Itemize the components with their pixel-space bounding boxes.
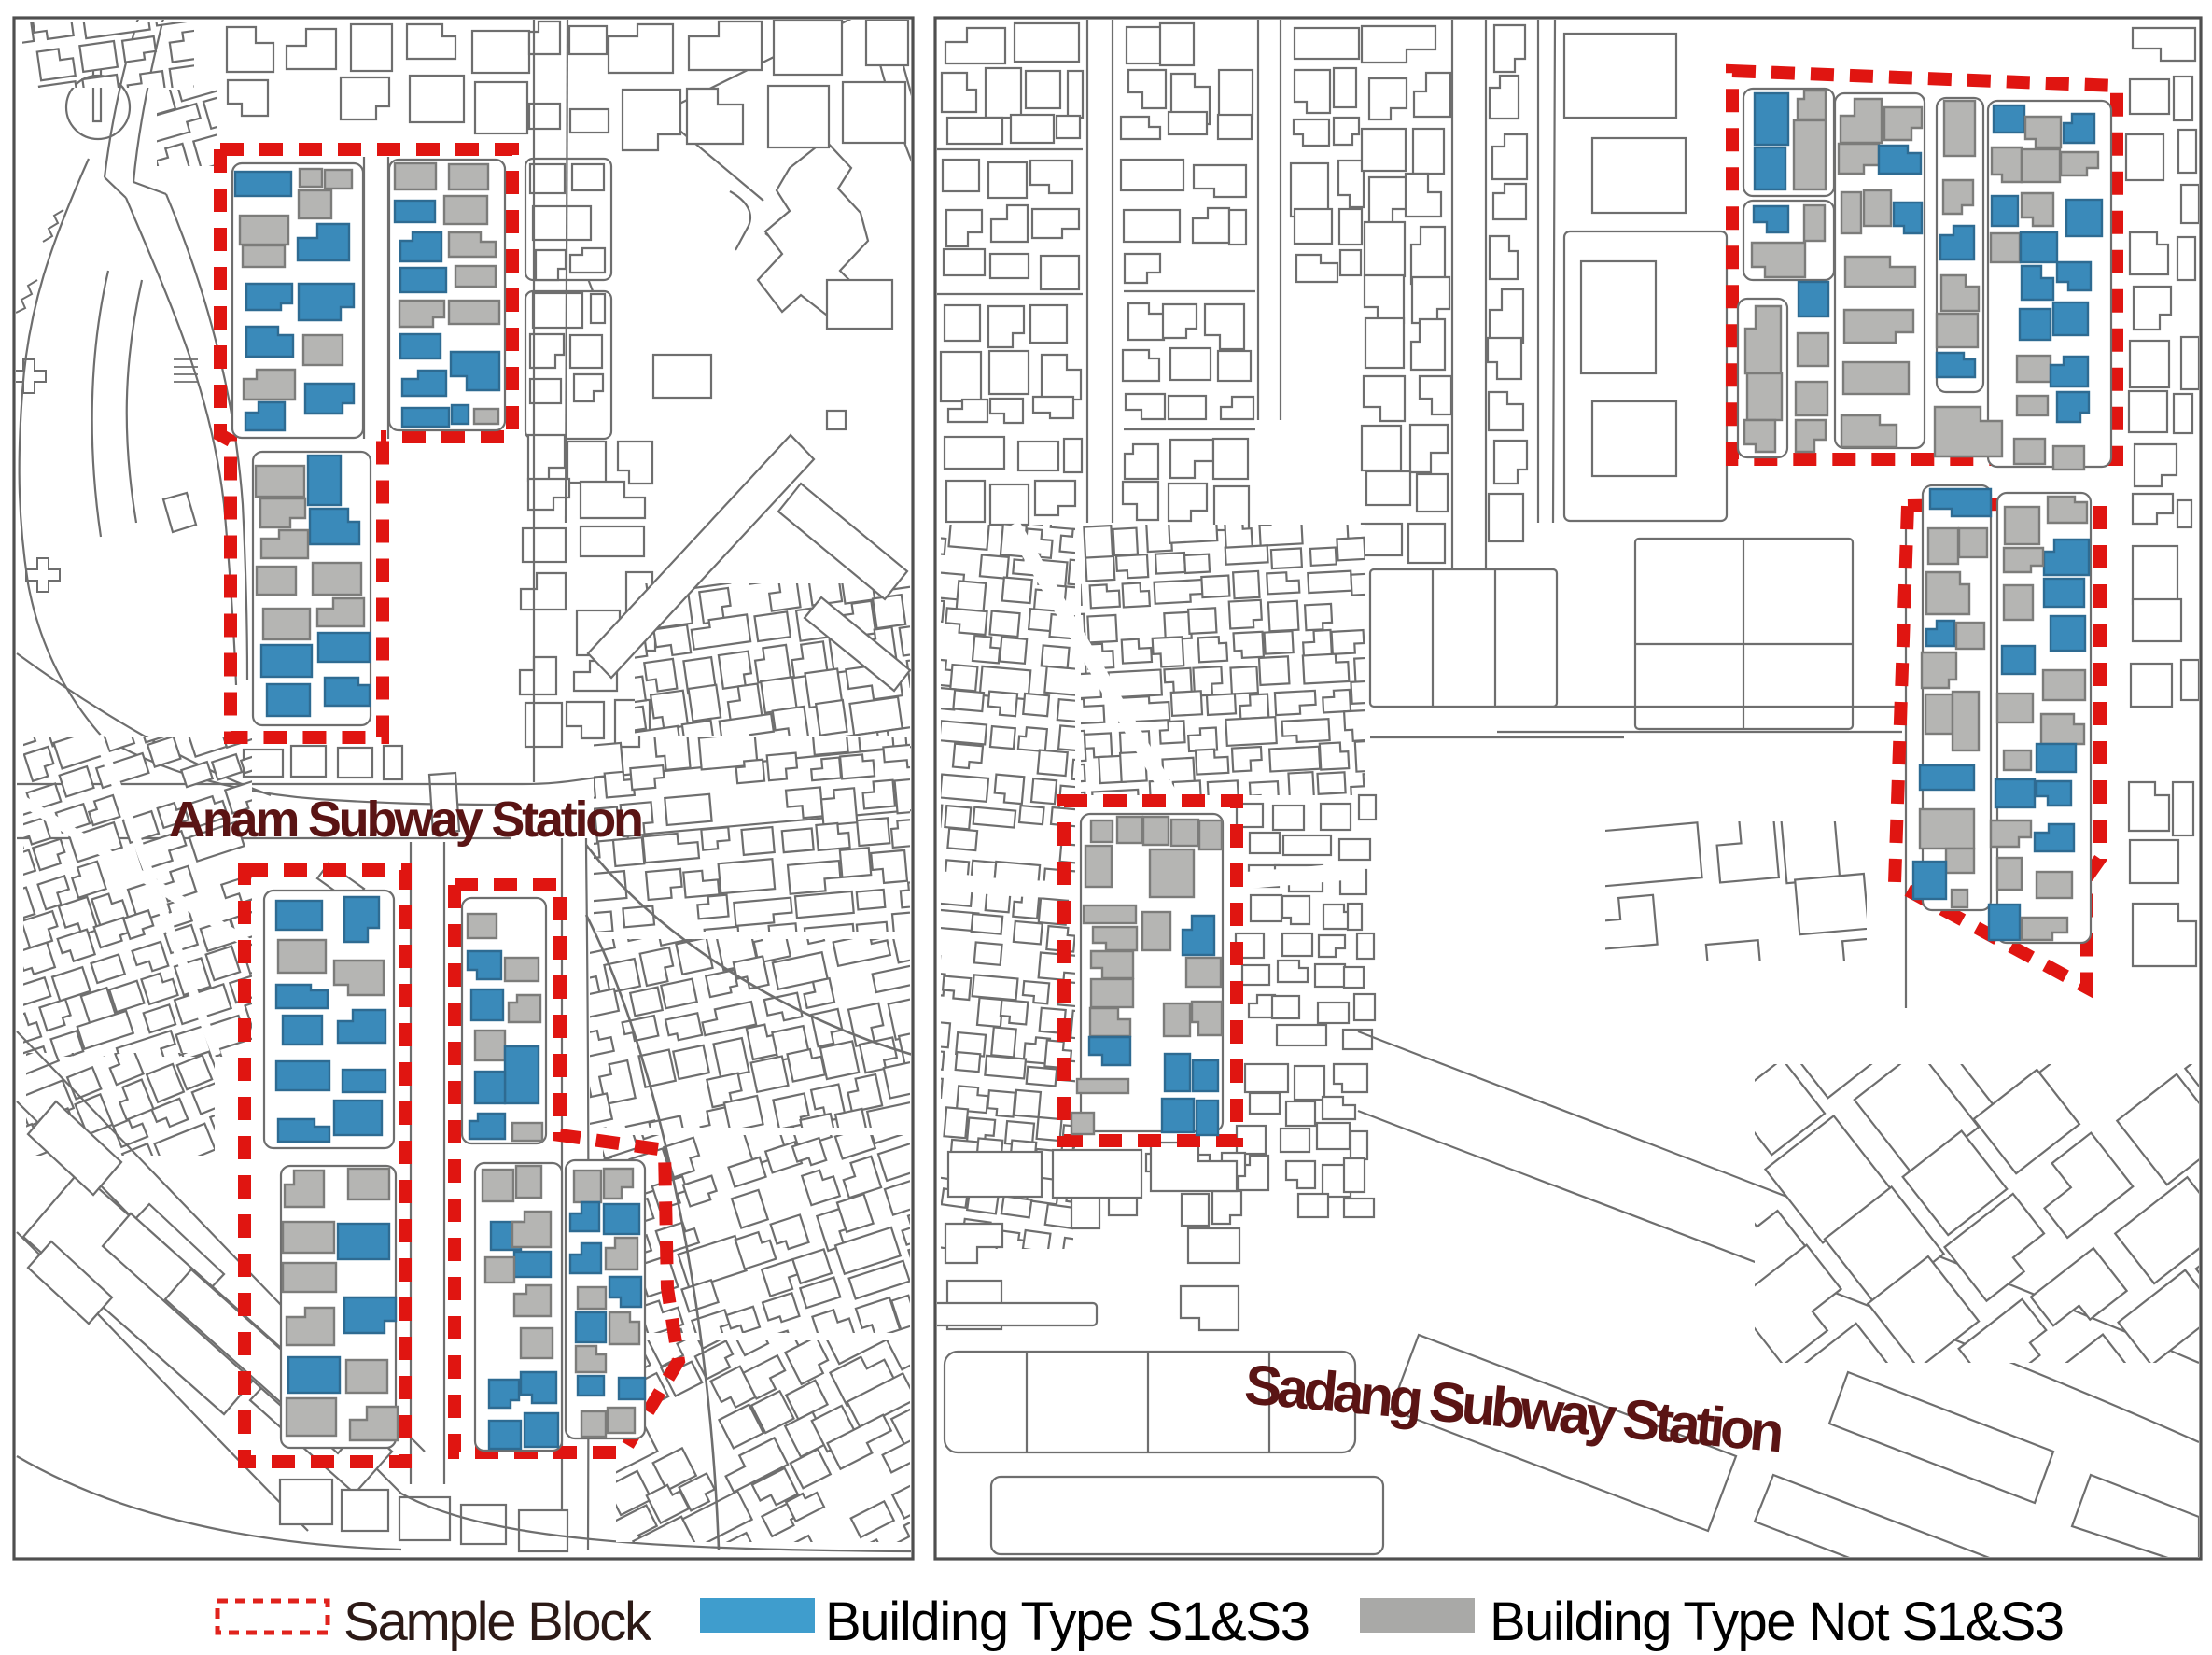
svg-text:Sample Block: Sample Block bbox=[343, 1592, 652, 1652]
svg-text:Building Type S1&S3: Building Type S1&S3 bbox=[825, 1592, 1310, 1652]
svg-text:Anam Subway Station: Anam Subway Station bbox=[169, 792, 644, 848]
svg-text:Building Type Not S1&S3: Building Type Not S1&S3 bbox=[1490, 1592, 2065, 1652]
